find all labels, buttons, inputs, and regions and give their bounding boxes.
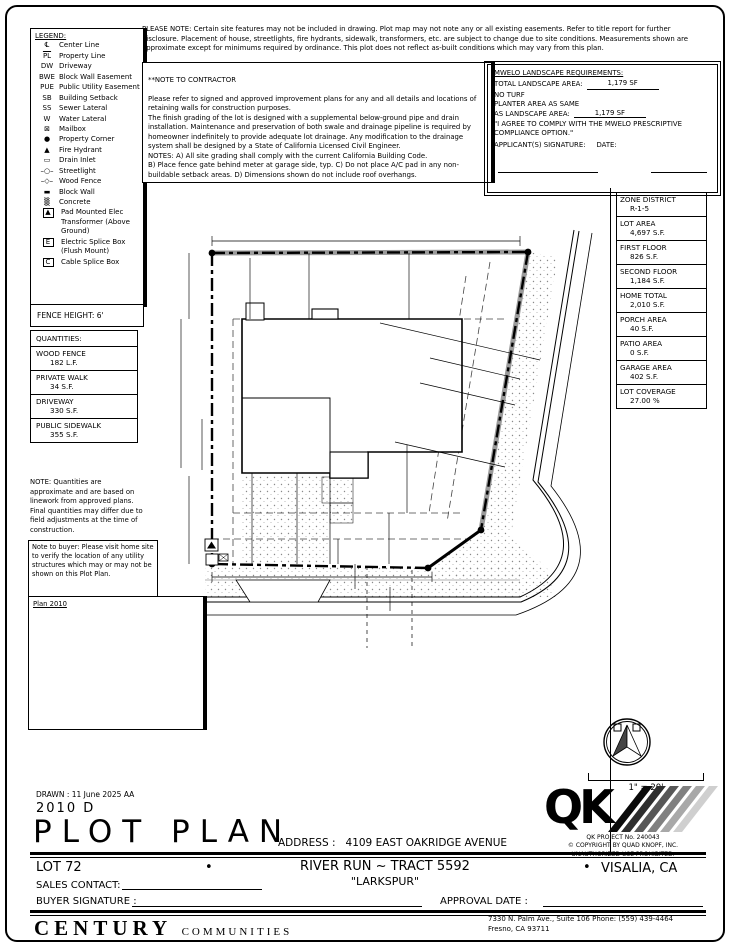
builder-address-line2: Fresno, CA 93711 xyxy=(488,925,673,935)
zone-row-value: 1,184 S.F. xyxy=(620,276,703,285)
zone-row-value: 4,697 S.F. xyxy=(620,228,703,237)
legend-item: –○–Streetlight xyxy=(35,167,141,176)
legend-label: Public Utility Easement xyxy=(59,83,141,92)
legend-item: SSSewer Lateral xyxy=(35,104,141,113)
legend-item: ▲Pad Mounted Elec Transformer (Above Gro… xyxy=(35,208,141,236)
qk-copyright: © COPYRIGHT BY QUAD KNOPF, INC. xyxy=(538,842,708,850)
zone-table-row: GARAGE AREA402 S.F. xyxy=(617,361,706,385)
mailbox-icon: ⊠ xyxy=(35,125,59,134)
qk-logo: QK xyxy=(544,780,611,834)
sewer-lateral-abbr: SS xyxy=(35,104,59,113)
zone-table-row: LOT AREA4,697 S.F. xyxy=(617,217,706,241)
legend-item: WWater Lateral xyxy=(35,115,141,124)
zone-table-row: LOT COVERAGE27.00 % xyxy=(617,385,706,408)
drain-inlet-icon: ▭ xyxy=(35,156,59,165)
zone-table-row: PORCH AREA40 S.F. xyxy=(617,313,706,337)
address-line: ADDRESS : 4109 EAST OAKRIDGE AVENUE xyxy=(278,837,507,849)
quantity-value: 330 S.F. xyxy=(36,406,132,415)
zone-row-label: LOT COVERAGE xyxy=(620,387,703,396)
zone-row-label: LOT AREA xyxy=(620,219,703,228)
double-rule xyxy=(30,852,706,858)
buyer-signature-blank xyxy=(132,896,422,907)
bullet-separator: • xyxy=(205,860,213,875)
legend-item: SBBuilding Setback xyxy=(35,94,141,103)
legend-label: Block Wall Easement xyxy=(59,73,141,82)
zone-row-label: HOME TOTAL xyxy=(620,291,703,300)
buyer-note-box: Note to buyer: Please visit home site to… xyxy=(28,540,158,598)
property-line-icon: PL xyxy=(35,52,59,61)
zone-row-value: 40 S.F. xyxy=(620,324,703,333)
legend-label: Sewer Lateral xyxy=(59,104,141,113)
concrete-icon: ▒ xyxy=(35,198,59,207)
quantities-box: QUANTITIES: WOOD FENCE182 L.F.PRIVATE WA… xyxy=(30,330,138,443)
mwelo-planter-value: 1,179 SF xyxy=(574,109,646,119)
approval-date-blank xyxy=(543,896,703,907)
legend-label: Fire Hydrant xyxy=(59,146,141,155)
legend-label: Center Line xyxy=(59,41,141,50)
mwelo-agree-statement: "I AGREE TO COMPLY WITH THE MWELO PRESCR… xyxy=(494,120,711,137)
legend-label: Building Setback xyxy=(59,94,141,103)
block-wall-easement-abbr: BWE xyxy=(35,73,59,82)
buyer-signature-label: BUYER SIGNATURE : xyxy=(36,896,137,907)
legend-item: ⊠Mailbox xyxy=(35,125,141,134)
quantities-note: NOTE: Quantities are approximate and are… xyxy=(30,478,146,535)
contractor-note-body: Please refer to signed and approved impr… xyxy=(148,95,486,181)
legend-item: CCable Splice Box xyxy=(35,258,141,268)
zone-table-row: ZONE DISTRICTR-1-5 xyxy=(617,193,706,217)
mwelo-planter-label2: AS LANDSCAPE AREA: xyxy=(494,110,570,119)
public-utility-easement-abbr: PUE xyxy=(35,83,59,92)
electric-splice-box-icon: E xyxy=(43,238,54,248)
zone-row-value: 0 S.F. xyxy=(620,348,703,357)
legend-items: ℄Center LinePLProperty LineDWDrivewayBWE… xyxy=(35,41,141,267)
driveway-concrete xyxy=(242,473,353,564)
legend-item: ▭Drain Inlet xyxy=(35,156,141,165)
zone-table-row: SECOND FLOOR1,184 S.F. xyxy=(617,265,706,289)
north-compass-icon xyxy=(598,714,656,770)
legend-label: Driveway xyxy=(59,62,141,71)
zone-table-row: FIRST FLOOR826 S.F. xyxy=(617,241,706,265)
legend-item: ●Property Corner xyxy=(35,135,141,144)
legend-item: –◇–Wood Fence xyxy=(35,177,141,186)
please-note: PLEASE NOTE: Certain site features may n… xyxy=(142,25,706,54)
centerline-icon: ℄ xyxy=(35,41,59,50)
legend-label: Electric Splice Box (Flush Mount) xyxy=(61,238,141,257)
legend-box: LEGEND: ℄Center LinePLProperty LineDWDri… xyxy=(30,28,147,307)
zone-row-value: R-1-5 xyxy=(620,204,703,213)
mwelo-title: MWELO LANDSCAPE REQUIREMENTS: xyxy=(494,68,711,78)
quantity-value: 182 L.F. xyxy=(36,358,132,367)
bullet-separator: • xyxy=(583,860,591,875)
sales-contact-blank xyxy=(122,879,262,890)
zone-row-label: PORCH AREA xyxy=(620,315,703,324)
driveway-apron xyxy=(236,580,330,602)
legend-item: ℄Center Line xyxy=(35,41,141,50)
house-outline xyxy=(242,303,462,478)
legend-label: Concrete xyxy=(59,198,141,207)
zone-row-label: GARAGE AREA xyxy=(620,363,703,372)
legend-item: PLProperty Line xyxy=(35,52,141,61)
site-plan-drawing xyxy=(150,225,615,717)
sales-contact-label: SALES CONTACT: xyxy=(36,880,120,891)
contractor-note-title: **NOTE TO CONTRACTOR xyxy=(148,76,486,86)
wood-fence-icon: –◇– xyxy=(35,177,59,186)
legend-item: EElectric Splice Box (Flush Mount) xyxy=(35,238,141,257)
mwelo-signature-label: APPLICANT(S) SIGNATURE: xyxy=(494,141,586,149)
mwelo-date-blank xyxy=(651,164,707,173)
legend-label: Streetlight xyxy=(59,167,141,176)
builder-address-line1: 7330 N. Palm Ave., Suite 106 Phone: (559… xyxy=(488,915,673,925)
property-corner-icon: ● xyxy=(35,135,59,144)
mwelo-planter-label1: PLANTER AREA AS SAME xyxy=(494,100,711,109)
qk-project-number: QK PROJECT No. 240043 xyxy=(538,834,708,842)
page-title: PLOT PLAN xyxy=(33,814,292,850)
mwelo-no-turf: NO TURF xyxy=(494,90,711,100)
legend-item: ▒Concrete xyxy=(35,198,141,207)
fence-height-box: FENCE HEIGHT: 6' xyxy=(30,304,144,327)
block-wall-icon: ▬ xyxy=(35,188,59,197)
quantities-rows: WOOD FENCE182 L.F.PRIVATE WALK34 S.F.DRI… xyxy=(31,347,137,442)
legend-label: Wood Fence xyxy=(59,177,141,186)
water-lateral-abbr: W xyxy=(35,115,59,124)
legend-title: LEGEND: xyxy=(35,32,141,41)
zone-row-value: 402 S.F. xyxy=(620,372,703,381)
quantities-title: QUANTITIES: xyxy=(31,331,137,347)
legend-label: Property Line xyxy=(59,52,141,61)
zone-row-value: 2,010 S.F. xyxy=(620,300,703,309)
legend-label: Block Wall xyxy=(59,188,141,197)
legend-label: Property Corner xyxy=(59,135,141,144)
quantity-name: PUBLIC SIDEWALK xyxy=(36,421,132,430)
city-label: VISALIA, CA xyxy=(601,861,677,876)
fire-hydrant-icon: ▲ xyxy=(35,146,59,155)
zone-row-label: FIRST FLOOR xyxy=(620,243,703,252)
cable-splice-box-icon: C xyxy=(43,258,54,268)
community-name: "LARKSPUR" xyxy=(250,875,520,888)
transformer-icon: ▲ xyxy=(43,208,54,218)
legend-item: ▲Fire Hydrant xyxy=(35,146,141,155)
legend-label: Drain Inlet xyxy=(59,156,141,165)
zone-row-value: 826 S.F. xyxy=(620,252,703,261)
quantity-name: DRIVEWAY xyxy=(36,397,132,406)
legend-item: PUEPublic Utility Easement xyxy=(35,83,141,92)
quantity-value: 34 S.F. xyxy=(36,382,132,391)
legend-label: Mailbox xyxy=(59,125,141,134)
streetlight-icon: –○– xyxy=(35,167,59,176)
driveway-abbr: DW xyxy=(35,62,59,71)
zone-row-value: 27.00 % xyxy=(620,396,703,405)
builder-address: 7330 N. Palm Ave., Suite 106 Phone: (559… xyxy=(488,915,673,935)
quantity-row: WOOD FENCE182 L.F. xyxy=(31,347,137,371)
building-setback-abbr: SB xyxy=(35,94,59,103)
zone-table-row: HOME TOTAL2,010 S.F. xyxy=(617,289,706,313)
builder-name: CENTURY xyxy=(34,916,171,940)
qk-logo-block: QK QK PROJECT No. 240043 © COPYRIGHT BY … xyxy=(538,786,708,858)
zone-table-row: PATIO AREA0 S.F. xyxy=(617,337,706,361)
contractor-note-box: **NOTE TO CONTRACTOR Please refer to sig… xyxy=(142,62,495,183)
legend-label: Cable Splice Box xyxy=(61,258,141,267)
tract-name: RIVER RUN ~ TRACT 5592 xyxy=(250,859,520,874)
legend-label: Water Lateral xyxy=(59,115,141,124)
legend-item: DWDriveway xyxy=(35,62,141,71)
approval-date-label: APPROVAL DATE : xyxy=(440,896,528,907)
quantity-value: 355 S.F. xyxy=(36,430,132,439)
utility-symbols xyxy=(205,539,228,565)
legend-item: BWEBlock Wall Easement xyxy=(35,73,141,82)
mwelo-signature-blank xyxy=(498,164,598,173)
quantity-row: PRIVATE WALK34 S.F. xyxy=(31,371,137,395)
mwelo-total-value: 1,179 SF xyxy=(587,78,659,89)
plot-plan-page: PLEASE NOTE: Certain site features may n… xyxy=(0,0,730,947)
quantity-row: PUBLIC SIDEWALK355 S.F. xyxy=(31,419,137,442)
quantity-name: WOOD FENCE xyxy=(36,349,132,358)
mwelo-total-label: TOTAL LANDSCAPE AREA: xyxy=(494,79,583,89)
builder-logo: CENTURY COMMUNITIES xyxy=(34,916,292,941)
mwelo-date-label: DATE: xyxy=(596,141,616,149)
builder-name-sub: COMMUNITIES xyxy=(182,926,293,938)
address-label: ADDRESS : xyxy=(278,837,336,849)
legend-label: Pad Mounted Elec Transformer (Above Grou… xyxy=(61,208,141,236)
address-value: 4109 EAST OAKRIDGE AVENUE xyxy=(346,837,508,849)
lot-number: LOT 72 xyxy=(36,860,82,875)
zone-row-label: ZONE DISTRICT xyxy=(620,195,703,204)
drawn-line: DRAWN : 11 June 2025 AA xyxy=(36,790,134,799)
zone-table: ZONE DISTRICTR-1-5LOT AREA4,697 S.F.FIRS… xyxy=(616,192,707,409)
quantity-row: DRIVEWAY330 S.F. xyxy=(31,395,137,419)
mwelo-box: MWELO LANDSCAPE REQUIREMENTS: TOTAL LAND… xyxy=(487,64,718,193)
quantity-name: PRIVATE WALK xyxy=(36,373,132,382)
legend-item: ▬Block Wall xyxy=(35,188,141,197)
zone-row-label: SECOND FLOOR xyxy=(620,267,703,276)
zone-row-label: PATIO AREA xyxy=(620,339,703,348)
